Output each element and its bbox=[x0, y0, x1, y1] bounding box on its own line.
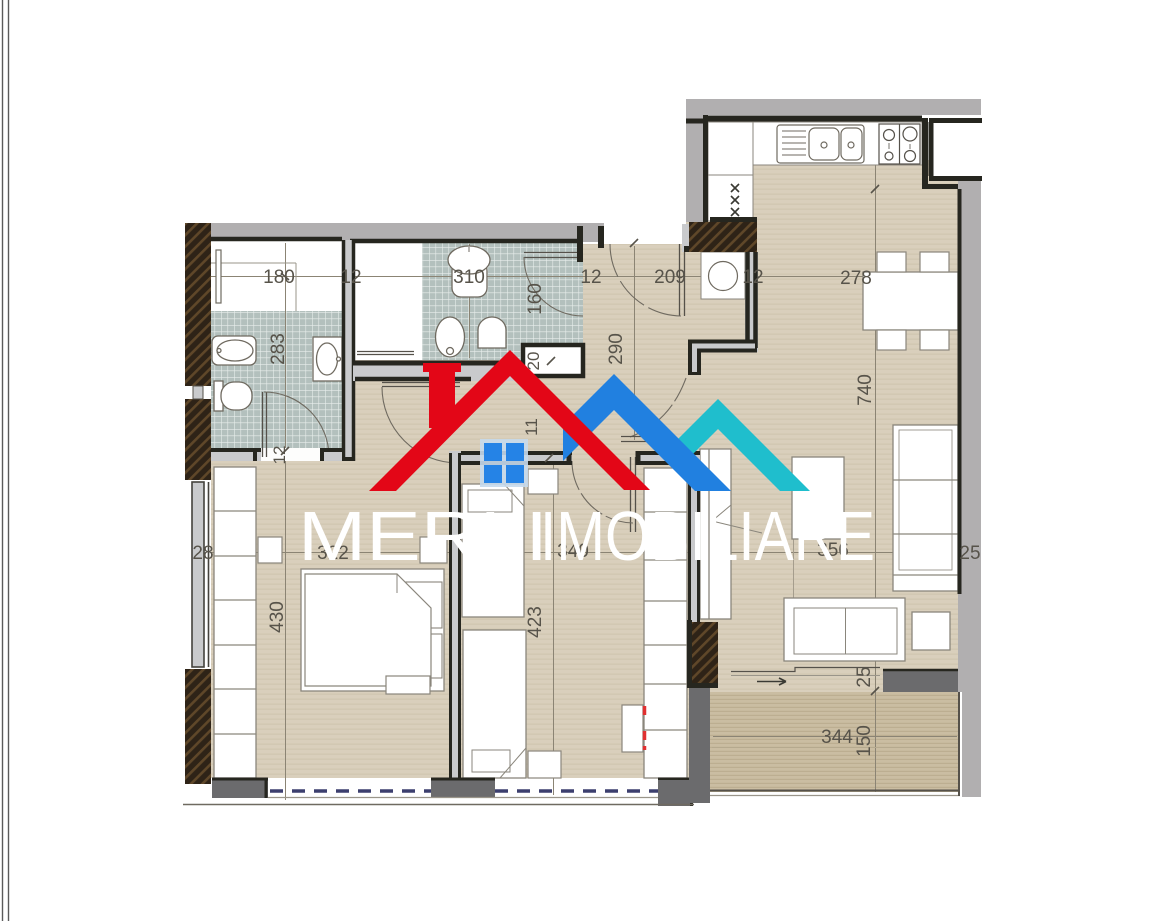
svg-text:430: 430 bbox=[267, 601, 288, 633]
svg-text:12: 12 bbox=[270, 446, 289, 465]
svg-text:MERLI: MERLI bbox=[298, 497, 548, 575]
svg-text:25: 25 bbox=[959, 543, 980, 564]
svg-text:12: 12 bbox=[580, 267, 601, 288]
svg-text:25: 25 bbox=[854, 666, 875, 687]
svg-text:344: 344 bbox=[821, 727, 853, 748]
svg-text:12: 12 bbox=[340, 267, 361, 288]
svg-text:310: 310 bbox=[453, 267, 485, 288]
svg-text:11: 11 bbox=[522, 418, 541, 436]
svg-text:209: 209 bbox=[654, 267, 686, 288]
svg-text:150: 150 bbox=[854, 725, 875, 757]
svg-text:740: 740 bbox=[855, 374, 876, 406]
svg-text:283: 283 bbox=[268, 333, 289, 365]
svg-text:28: 28 bbox=[192, 543, 213, 564]
svg-text:278: 278 bbox=[840, 268, 872, 289]
svg-text:160: 160 bbox=[525, 283, 546, 315]
svg-text:423: 423 bbox=[525, 606, 546, 638]
svg-text:290: 290 bbox=[606, 333, 627, 365]
svg-text:12: 12 bbox=[742, 267, 763, 288]
svg-text:IMOBILIARE: IMOBILIARE bbox=[540, 497, 875, 575]
svg-text:180: 180 bbox=[263, 267, 295, 288]
